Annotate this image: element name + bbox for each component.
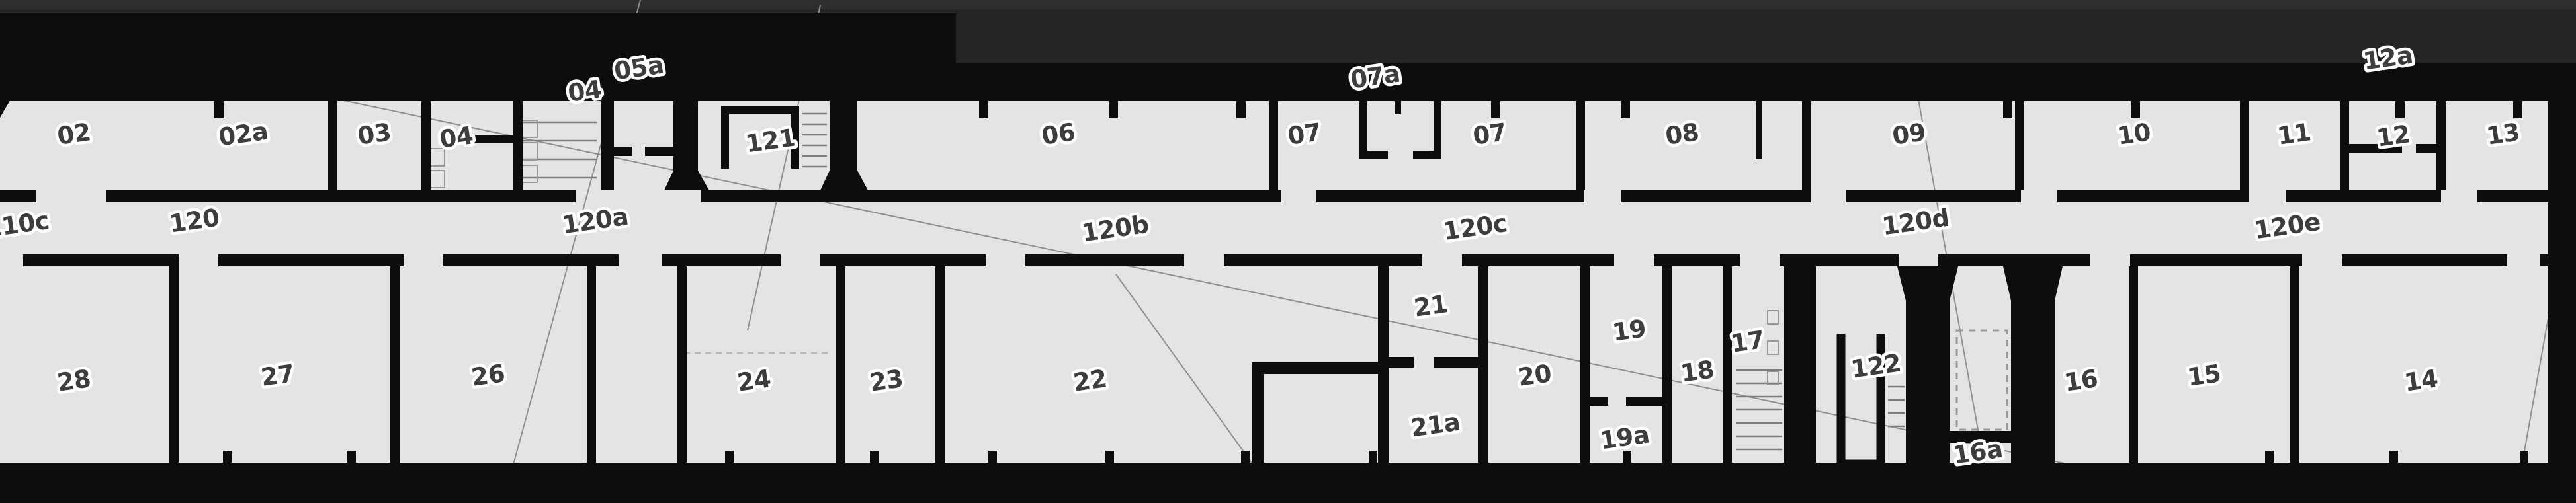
room-label-06: 06 — [1040, 118, 1077, 151]
room-label-07: 07 — [1471, 118, 1508, 151]
room-label-24: 24 — [736, 364, 773, 397]
room-label-12: 12 — [2375, 120, 2412, 153]
room-label-27: 27 — [259, 359, 296, 392]
room-label-14: 14 — [2403, 364, 2440, 397]
room-label-04: 04 — [566, 75, 603, 108]
room-label-08: 08 — [1664, 118, 1701, 151]
room-label-07: 07 — [1286, 118, 1323, 151]
room-label-21: 21 — [1412, 290, 1449, 323]
room-label-20: 20 — [1516, 359, 1553, 392]
room-label-02: 02 — [56, 118, 93, 151]
column-dot — [2004, 256, 2013, 265]
floor-plan-stage: 0202a03040405a121060707a070809101112a121… — [0, 0, 2576, 503]
room-label-18: 18 — [1679, 355, 1716, 388]
room-label-28: 28 — [56, 364, 93, 397]
pier — [1906, 301, 1950, 463]
room-label-03: 03 — [356, 118, 393, 151]
room-label-22: 22 — [1072, 364, 1109, 397]
room-label-23: 23 — [868, 364, 905, 397]
room-label-16: 16 — [2063, 364, 2100, 397]
pier — [1784, 266, 1816, 463]
room-label-11: 11 — [2276, 118, 2313, 151]
room-label-09: 09 — [1891, 118, 1928, 151]
room-label-04: 04 — [438, 121, 475, 154]
room-label-26: 26 — [470, 359, 507, 392]
room-label-13: 13 — [2485, 118, 2522, 151]
room-label-15: 15 — [2186, 359, 2223, 392]
pier — [2011, 301, 2055, 463]
column-dot — [1873, 256, 1881, 265]
room-label-17: 17 — [1729, 325, 1766, 358]
floor-plan-canvas: 0202a03040405a121060707a070809101112a121… — [0, 0, 2576, 503]
room-label-10: 10 — [2116, 118, 2153, 151]
room-label-19: 19 — [1611, 314, 1648, 347]
